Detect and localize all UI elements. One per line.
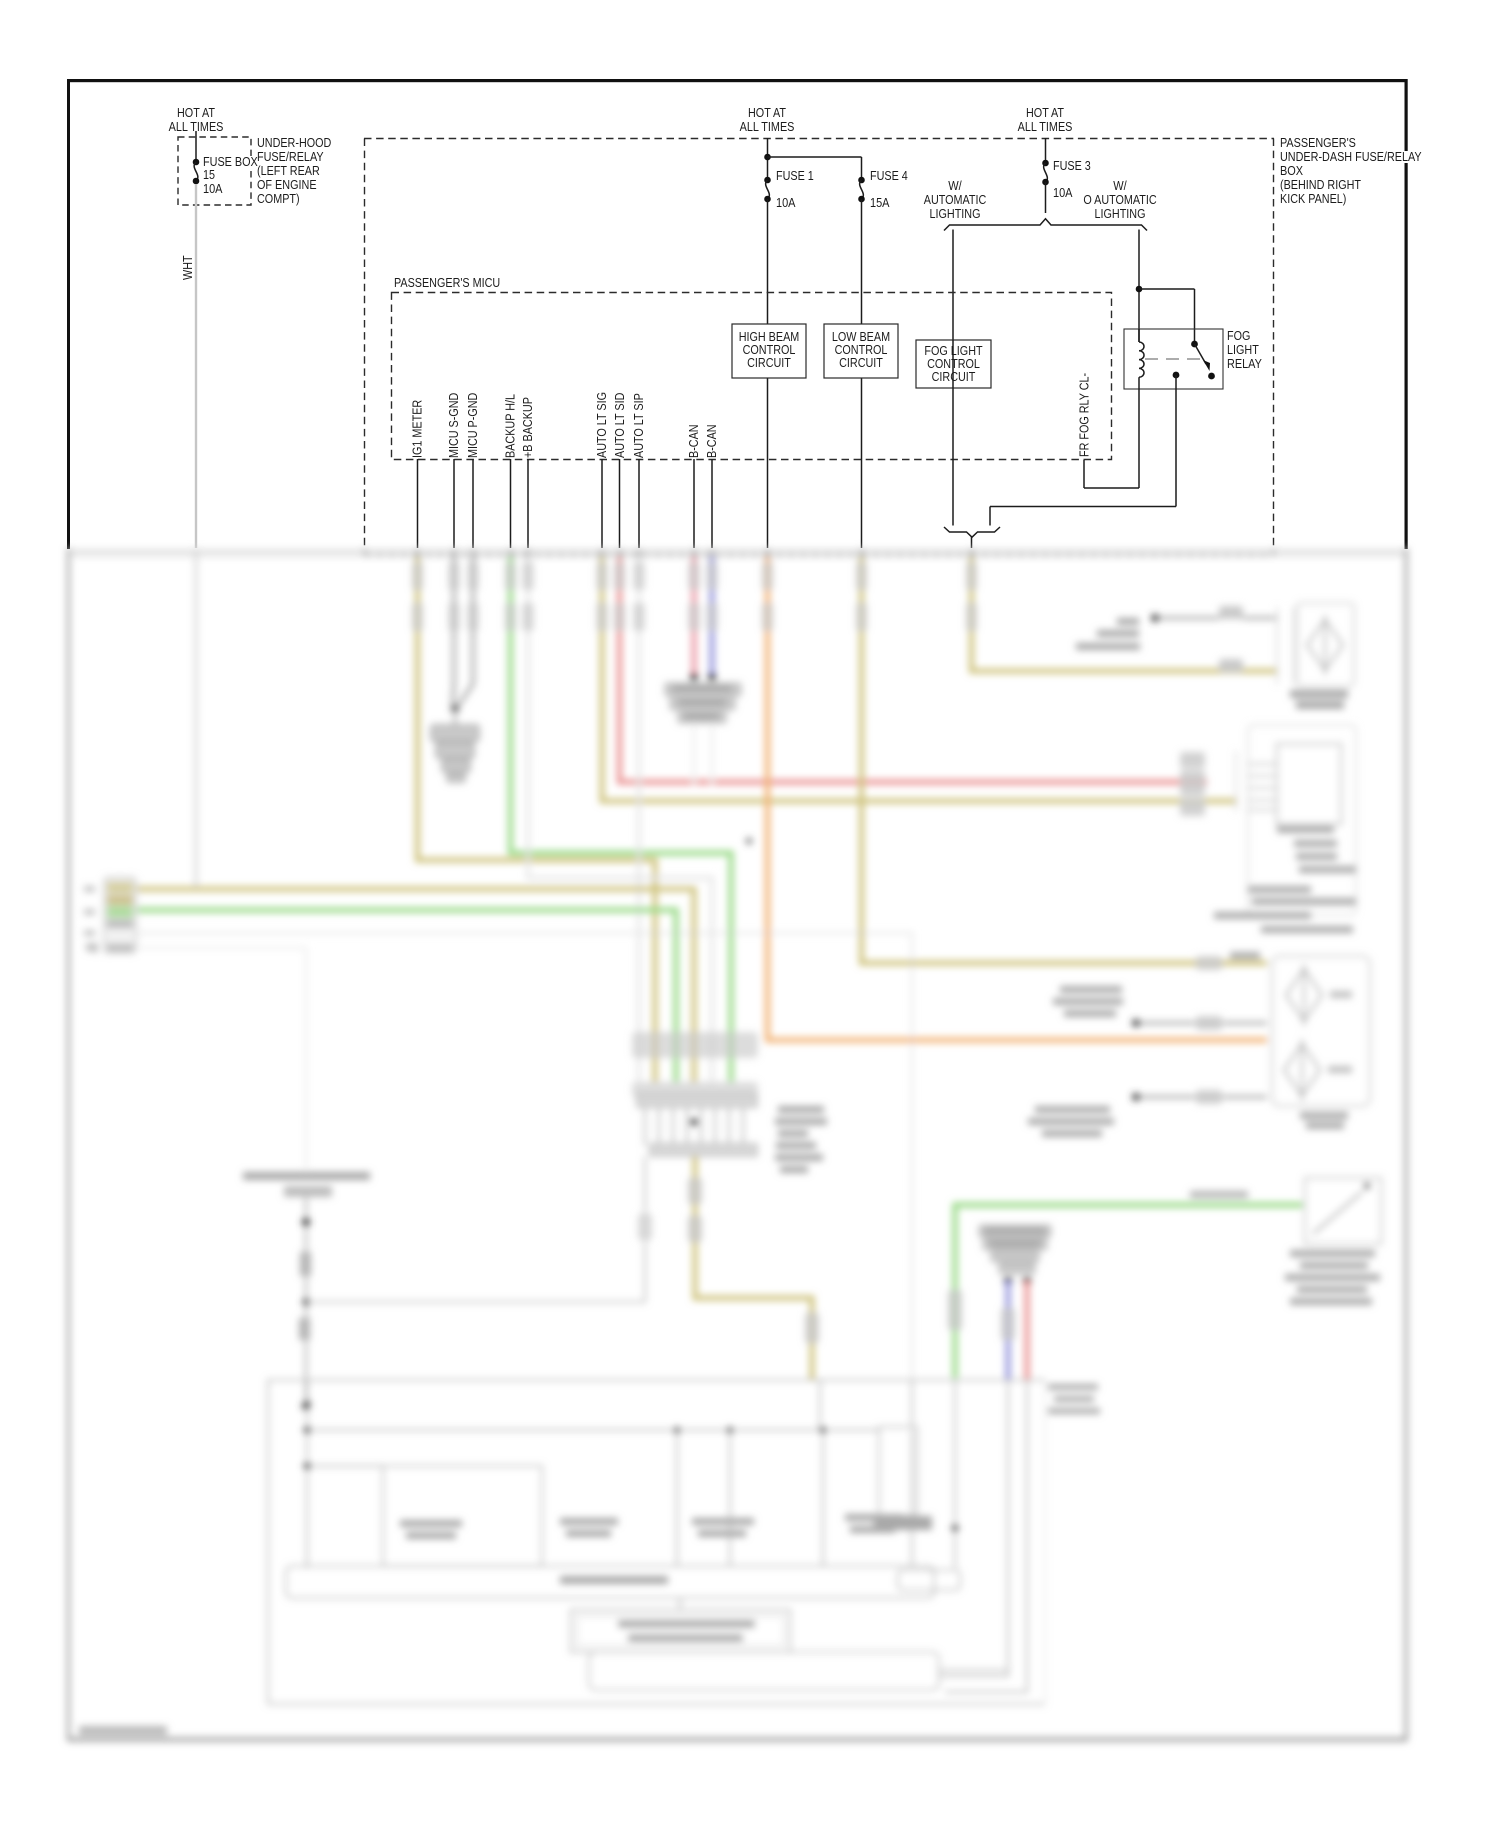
- svg-text:RELAY: RELAY: [1227, 356, 1262, 371]
- svg-text:FUSE 3: FUSE 3: [1053, 158, 1091, 173]
- svg-text:FUSE 1: FUSE 1: [776, 168, 814, 183]
- svg-text:W/: W/: [948, 178, 962, 193]
- svg-text:COMPT): COMPT): [257, 191, 300, 206]
- svg-text:LIGHTING: LIGHTING: [1095, 206, 1146, 221]
- svg-text:LIGHT: LIGHT: [1227, 342, 1259, 357]
- svg-text:MICU P-GND: MICU P-GND: [465, 393, 480, 458]
- svg-text:ALL TIMES: ALL TIMES: [740, 119, 795, 134]
- svg-text:HOT AT: HOT AT: [1026, 105, 1064, 120]
- svg-text:FUSE 4: FUSE 4: [870, 168, 908, 183]
- svg-text:MICU S-GND: MICU S-GND: [446, 393, 461, 458]
- svg-text:W/: W/: [1113, 178, 1127, 193]
- svg-text:PASSENGER'S MICU: PASSENGER'S MICU: [394, 275, 500, 290]
- svg-text:LIGHTING: LIGHTING: [930, 206, 981, 221]
- svg-text:FUSE/RELAY: FUSE/RELAY: [257, 149, 324, 164]
- svg-text:OF ENGINE: OF ENGINE: [257, 177, 317, 192]
- svg-text:PASSENGER'S: PASSENGER'S: [1280, 135, 1356, 150]
- svg-text:B-CAN: B-CAN: [686, 424, 701, 458]
- svg-text:FR FOG RLY CL-: FR FOG RLY CL-: [1077, 373, 1092, 457]
- svg-text:CIRCUIT: CIRCUIT: [839, 355, 883, 370]
- svg-text:BOX: BOX: [1280, 163, 1303, 178]
- svg-text:UNDER-HOOD: UNDER-HOOD: [257, 135, 331, 150]
- svg-text:O AUTOMATIC: O AUTOMATIC: [1083, 192, 1156, 207]
- svg-text:B-CAN: B-CAN: [704, 424, 719, 458]
- svg-text:15: 15: [203, 167, 215, 182]
- svg-text:(BEHIND RIGHT: (BEHIND RIGHT: [1280, 177, 1361, 192]
- svg-text:HOT AT: HOT AT: [177, 105, 215, 120]
- svg-text:BACKUP H/L: BACKUP H/L: [503, 394, 518, 458]
- svg-text:IG1 METER: IG1 METER: [410, 400, 425, 458]
- svg-text:CIRCUIT: CIRCUIT: [747, 355, 791, 370]
- svg-text:WHT: WHT: [180, 255, 195, 280]
- svg-text:AUTO LT SID: AUTO LT SID: [612, 393, 627, 458]
- svg-text:FOG: FOG: [1227, 328, 1250, 343]
- svg-text:15A: 15A: [870, 195, 890, 210]
- svg-text:AUTOMATIC: AUTOMATIC: [924, 192, 987, 207]
- svg-text:HOT AT: HOT AT: [748, 105, 786, 120]
- svg-text:KICK PANEL): KICK PANEL): [1280, 191, 1346, 206]
- svg-text:10A: 10A: [776, 195, 796, 210]
- svg-text:UNDER-DASH FUSE/RELAY: UNDER-DASH FUSE/RELAY: [1280, 149, 1422, 164]
- svg-text:(LEFT REAR: (LEFT REAR: [257, 163, 320, 178]
- svg-text:ALL TIMES: ALL TIMES: [1018, 119, 1073, 134]
- svg-text:AUTO LT SIG: AUTO LT SIG: [594, 392, 609, 458]
- svg-text:10A: 10A: [203, 181, 223, 196]
- svg-text:+B BACKUP: +B BACKUP: [520, 397, 535, 458]
- svg-text:10A: 10A: [1053, 185, 1073, 200]
- svg-text:AUTO LT SIP: AUTO LT SIP: [631, 393, 646, 458]
